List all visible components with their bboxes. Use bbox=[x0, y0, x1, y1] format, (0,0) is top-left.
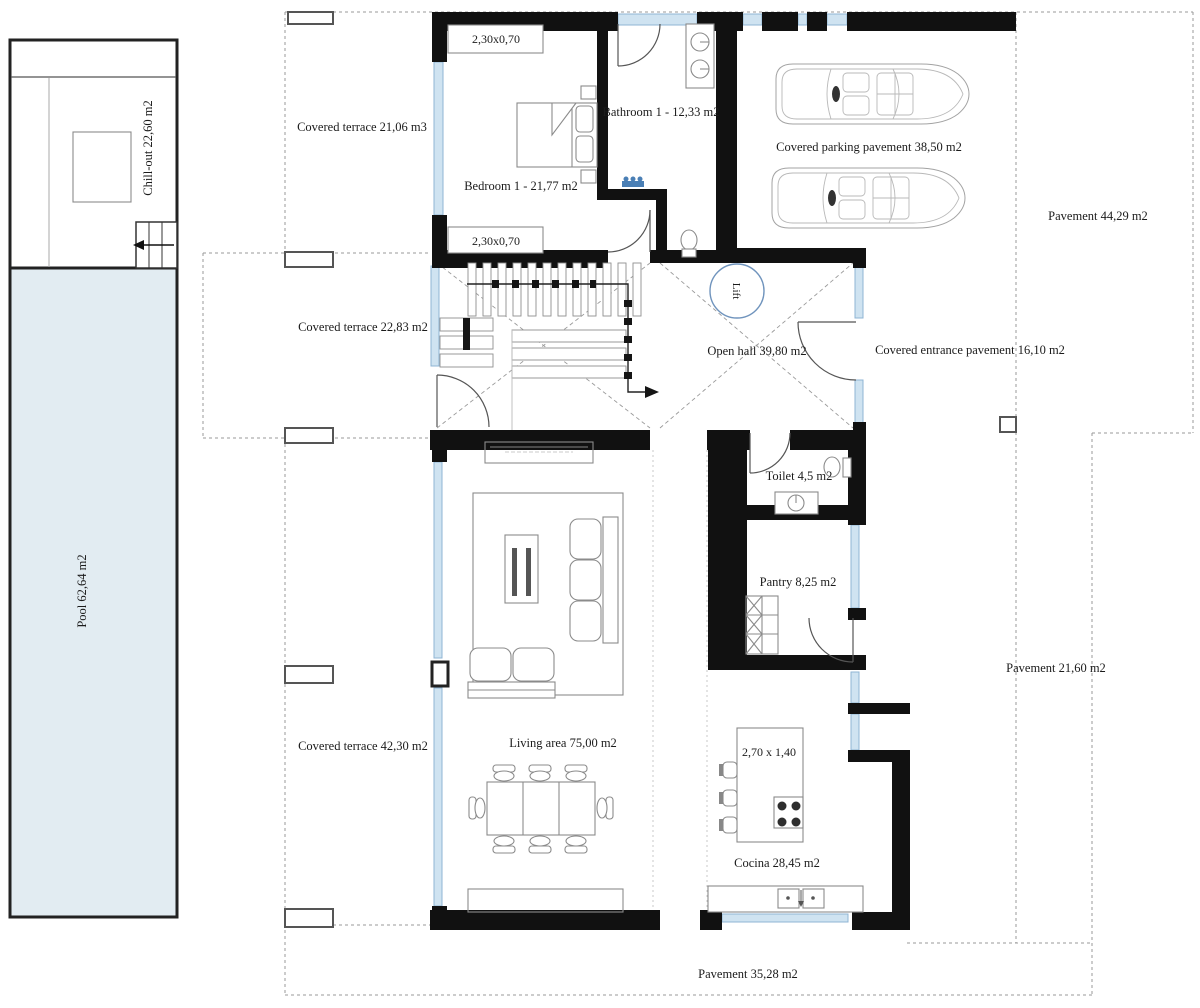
tv-unit bbox=[505, 535, 538, 603]
window-top-parking-1 bbox=[743, 14, 762, 25]
door-arc-entrance bbox=[798, 322, 856, 380]
terrace-pillar bbox=[285, 909, 333, 927]
staircase bbox=[440, 263, 659, 430]
label-cocina: Cocina 28,45 m2 bbox=[734, 856, 820, 870]
sideboard-bottom bbox=[468, 889, 623, 912]
plot-boundaries bbox=[203, 12, 1193, 995]
label-open-hall: Open hall 39,80 m2 bbox=[707, 344, 806, 358]
stair-arrow-icon bbox=[645, 386, 659, 398]
door-arc-bathroom bbox=[618, 24, 660, 66]
window-kitchen-east-2 bbox=[851, 714, 859, 750]
label-lift: Lift bbox=[730, 283, 742, 300]
towel-rail bbox=[622, 181, 644, 187]
pool-water bbox=[10, 268, 177, 917]
pantry-shelving bbox=[746, 596, 778, 654]
label-living-area: Living area 75,00 m2 bbox=[509, 736, 617, 750]
window-living-west-2 bbox=[434, 688, 442, 906]
label-covered-terrace-mid: Covered terrace 22,83 m2 bbox=[298, 320, 428, 334]
terrace-pillar bbox=[285, 252, 333, 267]
dining-set bbox=[469, 765, 613, 853]
dining-table bbox=[487, 782, 595, 835]
doors bbox=[437, 24, 856, 662]
window-living-west-1 bbox=[434, 462, 442, 658]
label-pavement-right: Pavement 44,29 m2 bbox=[1048, 209, 1148, 223]
window-kitchen-east-1 bbox=[851, 672, 859, 703]
bathroom-fixtures bbox=[622, 24, 714, 257]
label-covered-terrace-top: Covered terrace 21,06 m3 bbox=[297, 120, 427, 134]
label-covered-entrance: Covered entrance pavement 16,10 m2 bbox=[875, 343, 1065, 357]
sofa-cushion bbox=[570, 519, 601, 559]
window-top-parking-3 bbox=[827, 14, 847, 25]
terrace-pillar bbox=[285, 666, 333, 683]
sofa-cushion bbox=[570, 560, 601, 600]
door-arc-terrace bbox=[437, 375, 489, 427]
terrace-pillar bbox=[285, 428, 333, 443]
window-bedroom-west bbox=[434, 62, 443, 215]
sofa-cushion bbox=[470, 648, 511, 681]
window-top-bathroom bbox=[618, 14, 697, 25]
label-pool: Pool 62,64 m2 bbox=[75, 554, 89, 627]
nightstand-bottom bbox=[581, 170, 596, 183]
wc-icon bbox=[681, 230, 697, 250]
sofa-cushion bbox=[513, 648, 554, 681]
burner-icon bbox=[778, 802, 787, 811]
burner-icon bbox=[778, 818, 787, 827]
label-toilet: Toilet 4,5 m2 bbox=[766, 469, 833, 483]
label-pavement-mid-right: Pavement 21,60 m2 bbox=[1006, 661, 1106, 675]
label-closet-top-dim: 2,30x0,70 bbox=[472, 32, 520, 46]
label-pantry: Pantry 8,25 m2 bbox=[760, 575, 837, 589]
floor-plan-svg: Chill-out 22,60 m2 Pool 62,64 m2 bbox=[0, 0, 1200, 1008]
label-covered-terrace-bottom: Covered terrace 42,30 m2 bbox=[298, 739, 428, 753]
window-top-parking-2 bbox=[798, 14, 807, 25]
label-covered-parking: Covered parking pavement 38,50 m2 bbox=[776, 140, 962, 154]
burner-icon bbox=[792, 802, 801, 811]
facade-column bbox=[432, 662, 448, 686]
bedroom-furniture bbox=[448, 25, 597, 253]
door-arc-bedroom bbox=[608, 210, 650, 252]
terrace-pillar bbox=[288, 12, 333, 24]
label-bedroom1: Bedroom 1 - 21,77 m2 bbox=[464, 179, 578, 193]
car-2 bbox=[772, 168, 965, 228]
window-pantry-east bbox=[851, 525, 859, 608]
chillout-stairs bbox=[133, 222, 177, 268]
window-hall-east-2 bbox=[855, 380, 863, 426]
steering-wheel-icon bbox=[828, 190, 836, 206]
lift: Lift bbox=[710, 264, 764, 318]
bar-stools bbox=[719, 762, 737, 833]
steering-wheel-icon bbox=[832, 86, 840, 102]
label-closet-bottom-dim: 2,30x0,70 bbox=[472, 234, 520, 248]
label-bathroom1: Bathroom 1 - 12,33 m2 bbox=[602, 105, 719, 119]
label-pavement-bottom: Pavement 35,28 m2 bbox=[698, 967, 798, 981]
label-island-dim: 2,70 x 1,40 bbox=[742, 745, 796, 759]
label-chill-out: Chill-out 22,60 m2 bbox=[141, 100, 155, 196]
entrance-pillar bbox=[1000, 417, 1016, 432]
window-kitchen-south bbox=[722, 914, 848, 922]
window-hall-east-1 bbox=[855, 266, 863, 318]
door-arc-toilet bbox=[750, 433, 790, 473]
burner-icon bbox=[792, 818, 801, 827]
pool-chillout-block: Chill-out 22,60 m2 Pool 62,64 m2 bbox=[10, 40, 177, 917]
floor-plan-page: Chill-out 22,60 m2 Pool 62,64 m2 bbox=[0, 0, 1200, 1008]
sofa-cushion bbox=[570, 601, 601, 641]
window-hall-west bbox=[431, 266, 439, 366]
nightstand-top bbox=[581, 86, 596, 99]
car-1 bbox=[776, 64, 969, 124]
sofa-armrest bbox=[603, 517, 618, 643]
